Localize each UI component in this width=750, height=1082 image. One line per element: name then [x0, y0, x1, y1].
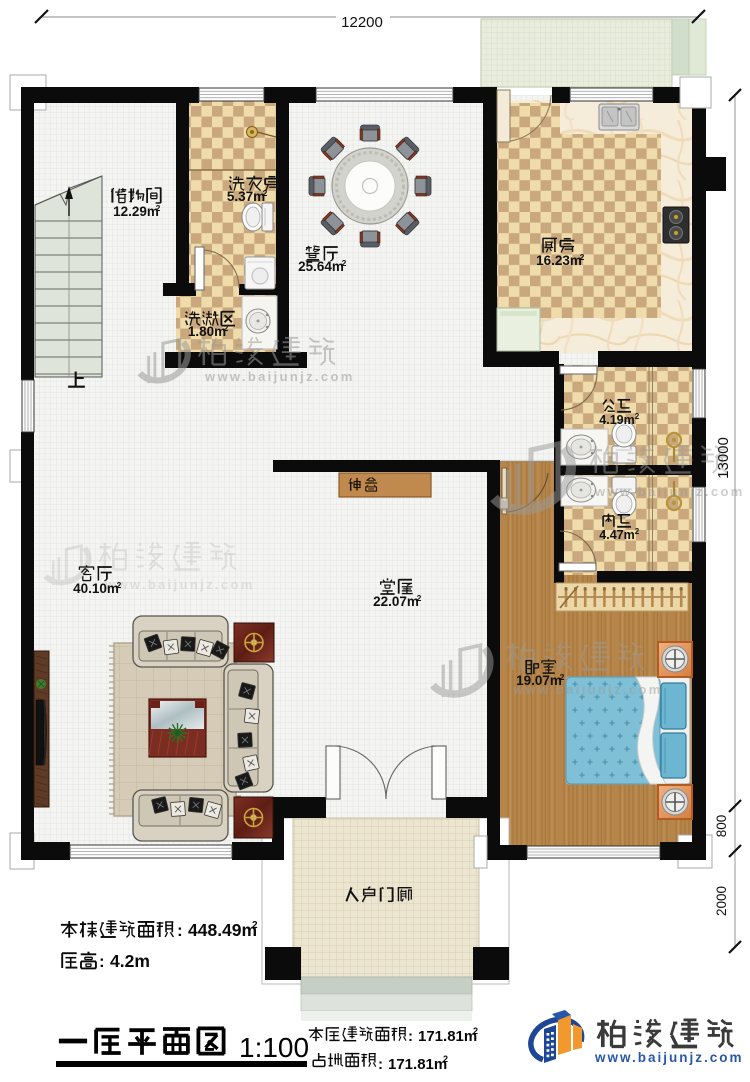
svg-text:www.baijunjz.com: www.baijunjz.com — [104, 577, 255, 592]
svg-text:2: 2 — [417, 593, 422, 603]
svg-text:40.10m: 40.10m — [73, 581, 119, 596]
svg-text:2: 2 — [224, 323, 229, 333]
svg-text:1:100: 1:100 — [239, 1032, 309, 1063]
svg-text:25.64m: 25.64m — [298, 259, 344, 274]
svg-text::: : — [177, 921, 183, 940]
svg-text:4.47m: 4.47m — [599, 528, 634, 542]
svg-text:2: 2 — [263, 188, 268, 198]
svg-text:2: 2 — [156, 203, 161, 213]
svg-text:12200: 12200 — [341, 14, 383, 31]
svg-text:171.81m: 171.81m — [388, 1056, 447, 1073]
svg-text:2: 2 — [560, 672, 565, 682]
svg-text:2: 2 — [635, 527, 640, 536]
svg-text:2: 2 — [117, 580, 122, 590]
svg-text:2: 2 — [252, 920, 258, 931]
svg-text::: : — [378, 1056, 383, 1073]
svg-text:2: 2 — [580, 252, 585, 262]
svg-text:5.37m: 5.37m — [227, 189, 265, 204]
svg-text:19.07m: 19.07m — [516, 673, 562, 688]
svg-text::: : — [99, 952, 105, 971]
svg-text:www.baijunjz.com: www.baijunjz.com — [204, 369, 355, 384]
svg-text:2: 2 — [443, 1054, 448, 1064]
svg-text:4.2m: 4.2m — [110, 951, 150, 971]
svg-text:448.49m: 448.49m — [188, 920, 257, 940]
svg-text:4.19m: 4.19m — [599, 413, 634, 427]
svg-text:22.07m: 22.07m — [373, 594, 419, 609]
svg-text:800: 800 — [714, 815, 729, 838]
svg-text:16.23m: 16.23m — [536, 253, 582, 268]
svg-text:12.29m: 12.29m — [113, 204, 159, 219]
svg-text:1.80m: 1.80m — [188, 324, 226, 339]
svg-text:2000: 2000 — [714, 886, 729, 916]
svg-text:171.81m: 171.81m — [418, 1028, 477, 1045]
svg-text:2: 2 — [342, 258, 347, 268]
svg-text:www.baijunjz.com: www.baijunjz.com — [594, 1050, 744, 1065]
svg-text:2: 2 — [473, 1026, 478, 1036]
svg-text:2: 2 — [635, 412, 640, 421]
svg-text::: : — [408, 1028, 413, 1045]
svg-text:13000: 13000 — [715, 437, 732, 479]
svg-text:www.baijunjz.com: www.baijunjz.com — [594, 484, 745, 499]
